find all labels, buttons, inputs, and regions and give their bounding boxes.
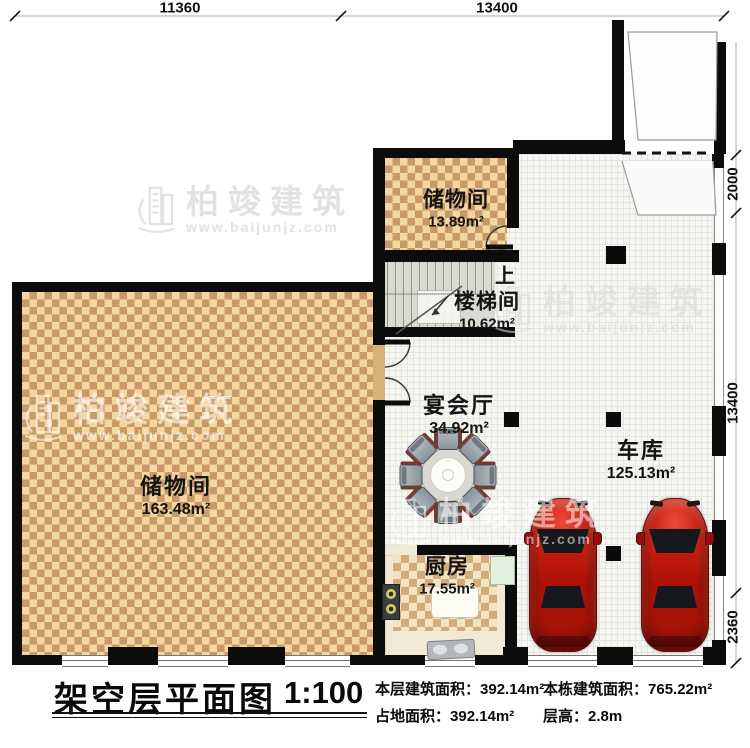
wall — [12, 282, 22, 665]
dining-table-center — [442, 469, 454, 481]
room-area: 34.92m² — [423, 420, 495, 438]
stat-value: 392.14m² — [450, 708, 514, 725]
stat-floor-area: 本层建筑面积：392.14m² — [375, 678, 544, 699]
windshield — [649, 529, 701, 553]
dimension-label: 2000 — [725, 167, 742, 200]
room-name: 车库 — [607, 433, 676, 465]
room-area: 10.62m² — [454, 316, 520, 333]
side-mirror-icon — [593, 532, 602, 545]
room-name: 宴会厅 — [423, 388, 495, 420]
dimension-label: 13400 — [725, 382, 742, 424]
car-roof — [542, 553, 584, 586]
stat-label: 层高： — [543, 708, 588, 725]
dimension-label: 2360 — [725, 610, 742, 643]
room-area: 17.55m² — [419, 581, 475, 598]
wall — [507, 148, 519, 228]
kitchen-door-threshold — [385, 545, 417, 555]
column — [606, 246, 626, 264]
window — [285, 655, 350, 667]
floor-plan: 11360 13400 2000 13400 2360 柏竣建筑 www.bai… — [0, 0, 750, 748]
windshield — [537, 529, 589, 553]
room-area: 125.13m² — [607, 465, 676, 483]
burner-icon — [386, 604, 396, 614]
room-area: 13.89m² — [423, 214, 489, 231]
room-area: 163.48m² — [140, 501, 212, 519]
column — [606, 412, 621, 427]
window — [528, 655, 597, 667]
chair-icon — [437, 501, 459, 524]
wall-column — [712, 520, 726, 576]
chair-icon — [474, 465, 497, 487]
stat-value: 765.22m² — [648, 681, 712, 698]
driveway-wall — [714, 42, 726, 154]
watermark: 柏竣建筑 www.baijunjz.com — [133, 182, 354, 238]
wall — [373, 400, 385, 665]
basin-icon — [454, 643, 469, 654]
wall-pier — [597, 647, 633, 655]
watermark-logo-icon — [133, 182, 179, 238]
stove-icon — [382, 584, 400, 620]
fridge-icon — [490, 556, 515, 585]
room-name: 储物间 — [423, 184, 489, 214]
wall-column — [712, 243, 726, 275]
headlight-icon — [575, 500, 589, 507]
room-label-storage-big: 储物间 163.48m² — [140, 469, 212, 519]
room-label-storage-top: 储物间 13.89m² — [423, 184, 489, 231]
room-label-stairwell: 楼梯间 10.62m² — [454, 286, 520, 333]
stat-label: 占地面积： — [375, 708, 450, 725]
room-name: 储物间 — [140, 469, 212, 501]
column — [504, 412, 519, 427]
title-underline — [52, 712, 367, 718]
room-label-garage: 车库 125.13m² — [607, 433, 676, 483]
dimension-label: 13400 — [476, 0, 518, 17]
side-mirror-icon — [636, 532, 645, 545]
stat-floor-height: 层高：2.8m — [543, 705, 622, 726]
burner-icon — [386, 589, 396, 599]
stat-label: 本层建筑面积： — [375, 681, 480, 698]
wall — [373, 148, 385, 345]
wall-pier — [503, 647, 528, 655]
driveway-wall — [612, 20, 624, 154]
dimension-label: 11360 — [160, 0, 201, 17]
stairs-up-label: 上 — [495, 260, 515, 289]
wall — [373, 148, 519, 158]
wall-column — [712, 154, 724, 168]
wall-pier — [108, 647, 158, 655]
rear-bumper — [648, 636, 702, 647]
rear-window — [653, 586, 697, 608]
window — [633, 655, 703, 667]
car-icon — [641, 498, 709, 652]
drawing-scale: 1:100 — [284, 675, 363, 711]
chair-icon — [400, 465, 423, 487]
rear-bumper — [536, 636, 590, 647]
room-name: 楼梯间 — [454, 286, 520, 316]
basin-icon — [433, 644, 448, 655]
watermark-url: www.baijunjz.com — [186, 219, 354, 235]
side-mirror-icon — [705, 532, 714, 545]
window — [62, 655, 108, 667]
stat-building-area: 本栋建筑面积：765.22m² — [543, 678, 712, 699]
door-threshold — [373, 345, 385, 400]
room-label-banquet: 宴会厅 34.92m² — [423, 388, 495, 438]
side-mirror-icon — [524, 532, 533, 545]
stat-value: 2.8m — [588, 708, 622, 725]
watermark-brand: 柏竣建筑 — [186, 185, 354, 220]
headlight-icon — [650, 500, 664, 507]
car-roof — [654, 553, 696, 586]
sink-icon — [427, 639, 476, 660]
wall — [513, 140, 625, 154]
wall-pier — [228, 647, 285, 655]
wall — [12, 282, 385, 292]
stat-value: 392.14m² — [480, 681, 544, 698]
stat-label: 本栋建筑面积： — [543, 681, 648, 698]
car-icon — [529, 498, 597, 652]
room-label-kitchen: 厨房 17.55m² — [419, 551, 475, 598]
headlight-icon — [687, 500, 701, 507]
rear-window — [541, 586, 585, 608]
wall — [12, 655, 726, 665]
stat-land-area: 占地面积：392.14m² — [375, 705, 514, 726]
headlight-icon — [538, 500, 552, 507]
column — [606, 546, 621, 561]
right-glass-wall — [714, 154, 724, 655]
window — [158, 655, 228, 667]
room-name: 厨房 — [419, 551, 475, 581]
